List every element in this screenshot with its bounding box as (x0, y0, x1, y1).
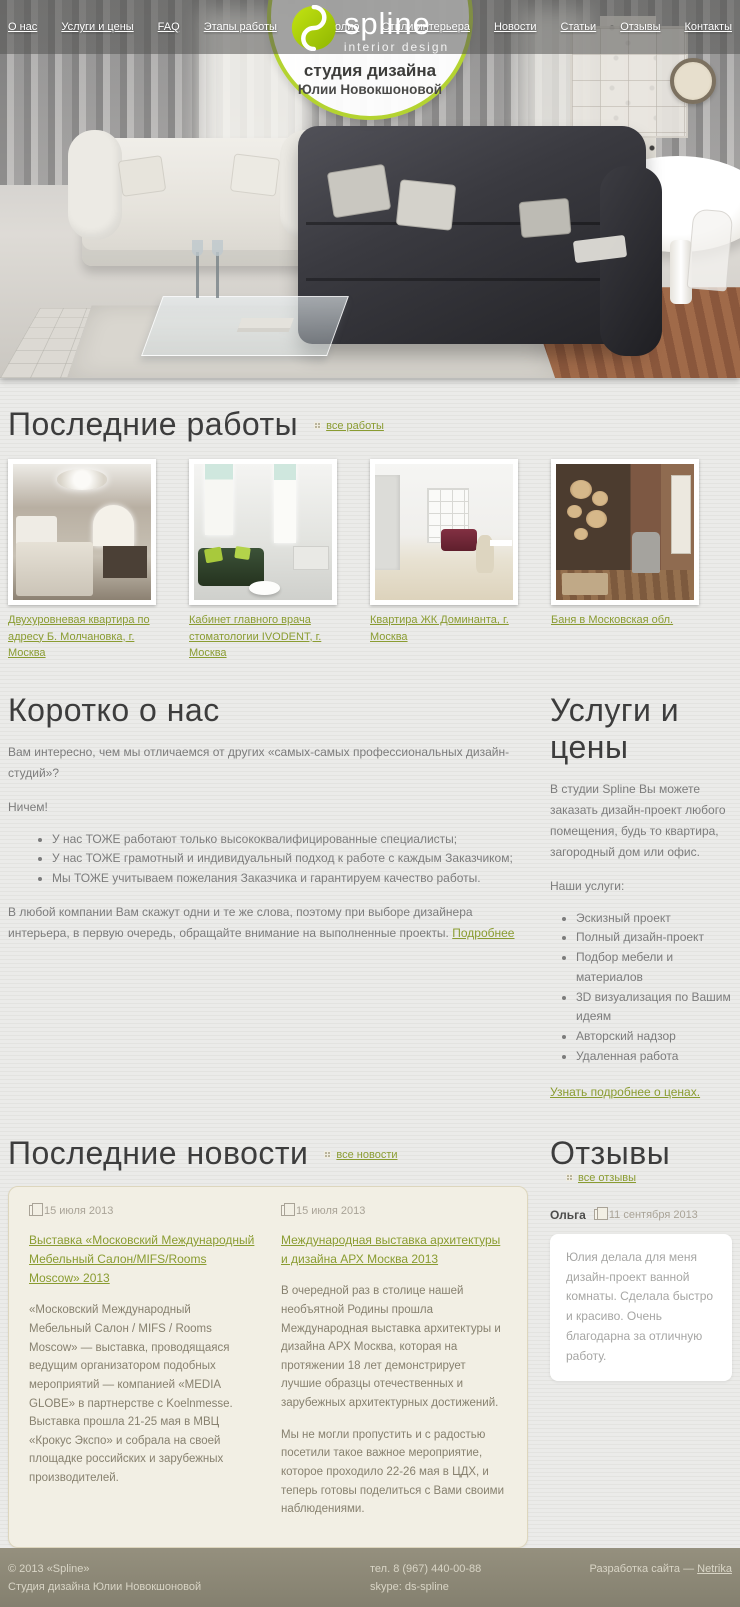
work-thumbnail-apartment[interactable] (370, 459, 518, 605)
review-date: 11 сентября 2013 (609, 1209, 698, 1221)
service-item: Полный дизайн-проект (576, 928, 732, 948)
nav-item-about[interactable]: О нас (8, 21, 37, 33)
section-last-works: Последние работывсе работы Двухуровневая… (0, 406, 740, 662)
nav-item-faq[interactable]: FAQ (158, 21, 180, 33)
all-reviews-link[interactable]: все отзывы (566, 1172, 636, 1184)
work-link[interactable]: Баня в Московская обл. (551, 614, 673, 626)
pillow-shape (118, 155, 167, 197)
about-bullets: У нас ТОЖЕ работают только высококвалифи… (52, 830, 528, 889)
news-column: Последние новостивсе новости 15 июля 201… (8, 1135, 528, 1548)
all-news-label: все новости (336, 1149, 397, 1161)
all-works-label: все работы (326, 420, 384, 432)
review-bubble: Юлия делала для меня дизайн-проект ванно… (550, 1234, 732, 1381)
news-date-row: 15 июля 2013 (29, 1205, 255, 1217)
wine-glass-shape (216, 252, 219, 298)
service-item: Эскизный проект (576, 909, 732, 929)
nav-item-stages[interactable]: Этапы работы (204, 21, 277, 33)
nav-item-articles[interactable]: Статьи (561, 21, 597, 33)
works-title: Последние работы (8, 406, 298, 443)
about-bullet: Мы ТОЖЕ учитываем пожелания Заказчика и … (52, 869, 528, 889)
news-item-title[interactable]: Международная выставка архитектуры и диз… (281, 1231, 507, 1269)
nav-item-contacts[interactable]: Контакты (684, 21, 732, 33)
reviews-title: Отзывы (550, 1135, 670, 1172)
news-item-title[interactable]: Выставка «Московский Международный Мебел… (29, 1231, 255, 1289)
news-item: 15 июля 2013 Выставка «Московский Междун… (29, 1205, 255, 1519)
footer: © 2013 «Spline» Студия дизайна Юлии Ново… (0, 1548, 740, 1607)
office-render-image (194, 464, 332, 600)
about-bullet: У нас ТОЖЕ грамотный и индивидуальный по… (52, 849, 528, 869)
dining-chair-shape (687, 208, 734, 291)
footer-dev-link[interactable]: Netrika (697, 1563, 732, 1575)
section-news-reviews: Последние новостивсе новости 15 июля 201… (0, 1135, 740, 1548)
nav-item-news[interactable]: Новости (494, 21, 537, 33)
prices-link[interactable]: Узнать подробнее о ценах. (550, 1085, 700, 1099)
footer-studio: Студия дизайна Юлии Новокшоновой (8, 1578, 370, 1597)
work-item: Кабинет главного врача стоматологии IVOD… (189, 459, 337, 662)
news-paragraph: Мы не могли пропустить и с радостью посе… (281, 1426, 507, 1519)
about-outro-text: В любой компании Вам скажут одни и те же… (8, 905, 473, 940)
grid-icon (324, 1151, 331, 1158)
footer-dev-label: Разработка сайта — (590, 1563, 698, 1575)
works-row: Двухуровневая квартира по адресу Б. Молч… (8, 459, 732, 662)
news-date-row: 15 июля 2013 (281, 1205, 507, 1217)
services-list-label: Наши услуги: (550, 876, 732, 897)
work-thumbnail-office[interactable] (189, 459, 337, 605)
nav-item-reviews[interactable]: Отзывы (620, 21, 660, 33)
work-link[interactable]: Квартира ЖК Доминанта, г. Москва (370, 614, 509, 643)
document-icon (281, 1205, 290, 1216)
services-title: Услуги и цены (550, 692, 732, 766)
badge-line1: студия дизайна (271, 61, 469, 81)
review-author: Ольга (550, 1208, 586, 1222)
about-exclaim: Ничем! (8, 797, 528, 818)
footer-skype: skype: ds-spline (370, 1578, 573, 1597)
review-meta: Ольга 11 сентября 2013 (550, 1208, 732, 1222)
all-reviews-label: все отзывы (578, 1172, 636, 1184)
logo-name: spline (344, 8, 449, 39)
pillow-shape (327, 164, 391, 219)
news-title: Последние новости (8, 1135, 308, 1172)
work-thumbnail-bedroom[interactable] (8, 459, 156, 605)
grid-icon (566, 1174, 573, 1181)
nav-item-services[interactable]: Услуги и цены (61, 21, 133, 33)
review-date-row: 11 сентября 2013 (594, 1209, 698, 1221)
work-link[interactable]: Кабинет главного врача стоматологии IVOD… (189, 614, 321, 659)
logo[interactable]: spline interior design (291, 5, 449, 56)
pillow-shape (230, 153, 280, 196)
spline-logo-icon (291, 5, 337, 56)
logo-text: spline interior design (344, 8, 449, 53)
work-caption: Квартира ЖК Доминанта, г. Москва (370, 612, 518, 645)
about-outro: В любой компании Вам скажут одни и те же… (8, 902, 528, 944)
footer-phone: тел. 8 (967) 440-00-88 (370, 1560, 573, 1579)
footer-contacts-block: тел. 8 (967) 440-00-88 skype: ds-spline (370, 1560, 573, 1607)
work-item: Квартира ЖК Доминанта, г. Москва (370, 459, 518, 662)
all-works-link[interactable]: все работы (314, 420, 384, 432)
news-item: 15 июля 2013 Международная выставка архи… (281, 1205, 507, 1519)
grid-icon (314, 422, 321, 429)
about-column: Коротко о нас Вам интересно, чем мы отли… (8, 692, 528, 1101)
news-card: 15 июля 2013 Выставка «Московский Междун… (8, 1186, 528, 1548)
reviews-column: Отзывывсе отзывы Ольга 11 сентября 2013 … (550, 1135, 732, 1548)
books-shape (238, 318, 294, 328)
services-list: Эскизный проект Полный дизайн-проект Под… (576, 909, 732, 1067)
news-date: 15 июля 2013 (44, 1205, 113, 1217)
pillow-shape (519, 198, 572, 238)
news-date: 15 июля 2013 (296, 1205, 365, 1217)
leather-sofa-shape (298, 126, 646, 344)
work-caption: Двухуровневая квартира по адресу Б. Молч… (8, 612, 156, 662)
about-intro: Вам интересно, чем мы отличаемся от друг… (8, 742, 528, 784)
services-intro: В студии Spline Вы можете заказать дизай… (550, 779, 732, 863)
work-caption: Кабинет главного врача стоматологии IVOD… (189, 612, 337, 662)
work-item: Двухуровневая квартира по адресу Б. Молч… (8, 459, 156, 662)
footer-copyright: © 2013 «Spline» (8, 1560, 370, 1579)
apartment-render-image (375, 464, 513, 600)
wine-glass-shape (196, 252, 199, 298)
work-link[interactable]: Двухуровневая квартира по адресу Б. Молч… (8, 614, 150, 659)
bedroom-render-image (13, 464, 151, 600)
badge-line2: Юлии Новокшоновой (271, 82, 469, 97)
work-caption: Баня в Московская обл. (551, 612, 699, 629)
footer-developer-block: Разработка сайта — Netrika (573, 1560, 732, 1607)
about-more-link[interactable]: Подробнее (452, 926, 514, 940)
document-icon (594, 1209, 603, 1220)
service-item: Удаленная работа (576, 1047, 732, 1067)
service-item: 3D визуализация по Вашим идеям (576, 988, 732, 1028)
about-title: Коротко о нас (8, 692, 220, 729)
section-about-services: Коротко о нас Вам интересно, чем мы отли… (0, 692, 740, 1101)
sauna-render-image (556, 464, 694, 600)
news-paragraph: «Московский Международный Мебельный Сало… (29, 1301, 255, 1487)
footer-copyright-block: © 2013 «Spline» Студия дизайна Юлии Ново… (8, 1560, 370, 1607)
work-item: Баня в Московская обл. (551, 459, 699, 662)
all-news-link[interactable]: все новости (324, 1149, 397, 1161)
pillow-shape (396, 179, 457, 231)
work-thumbnail-sauna[interactable] (551, 459, 699, 605)
hero-banner: студия дизайна Юлии Новокшоновой О нас У… (0, 0, 740, 378)
news-paragraph: В очередной раз в столице нашей необъятн… (281, 1282, 507, 1412)
service-item: Авторский надзор (576, 1027, 732, 1047)
logo-tagline: interior design (344, 41, 449, 53)
service-item: Подбор мебели и материалов (576, 948, 732, 988)
wall-clock-shape (670, 58, 716, 104)
services-column: Услуги и цены В студии Spline Вы можете … (550, 692, 732, 1101)
about-bullet: У нас ТОЖЕ работают только высококвалифи… (52, 830, 528, 850)
document-icon (29, 1205, 38, 1216)
